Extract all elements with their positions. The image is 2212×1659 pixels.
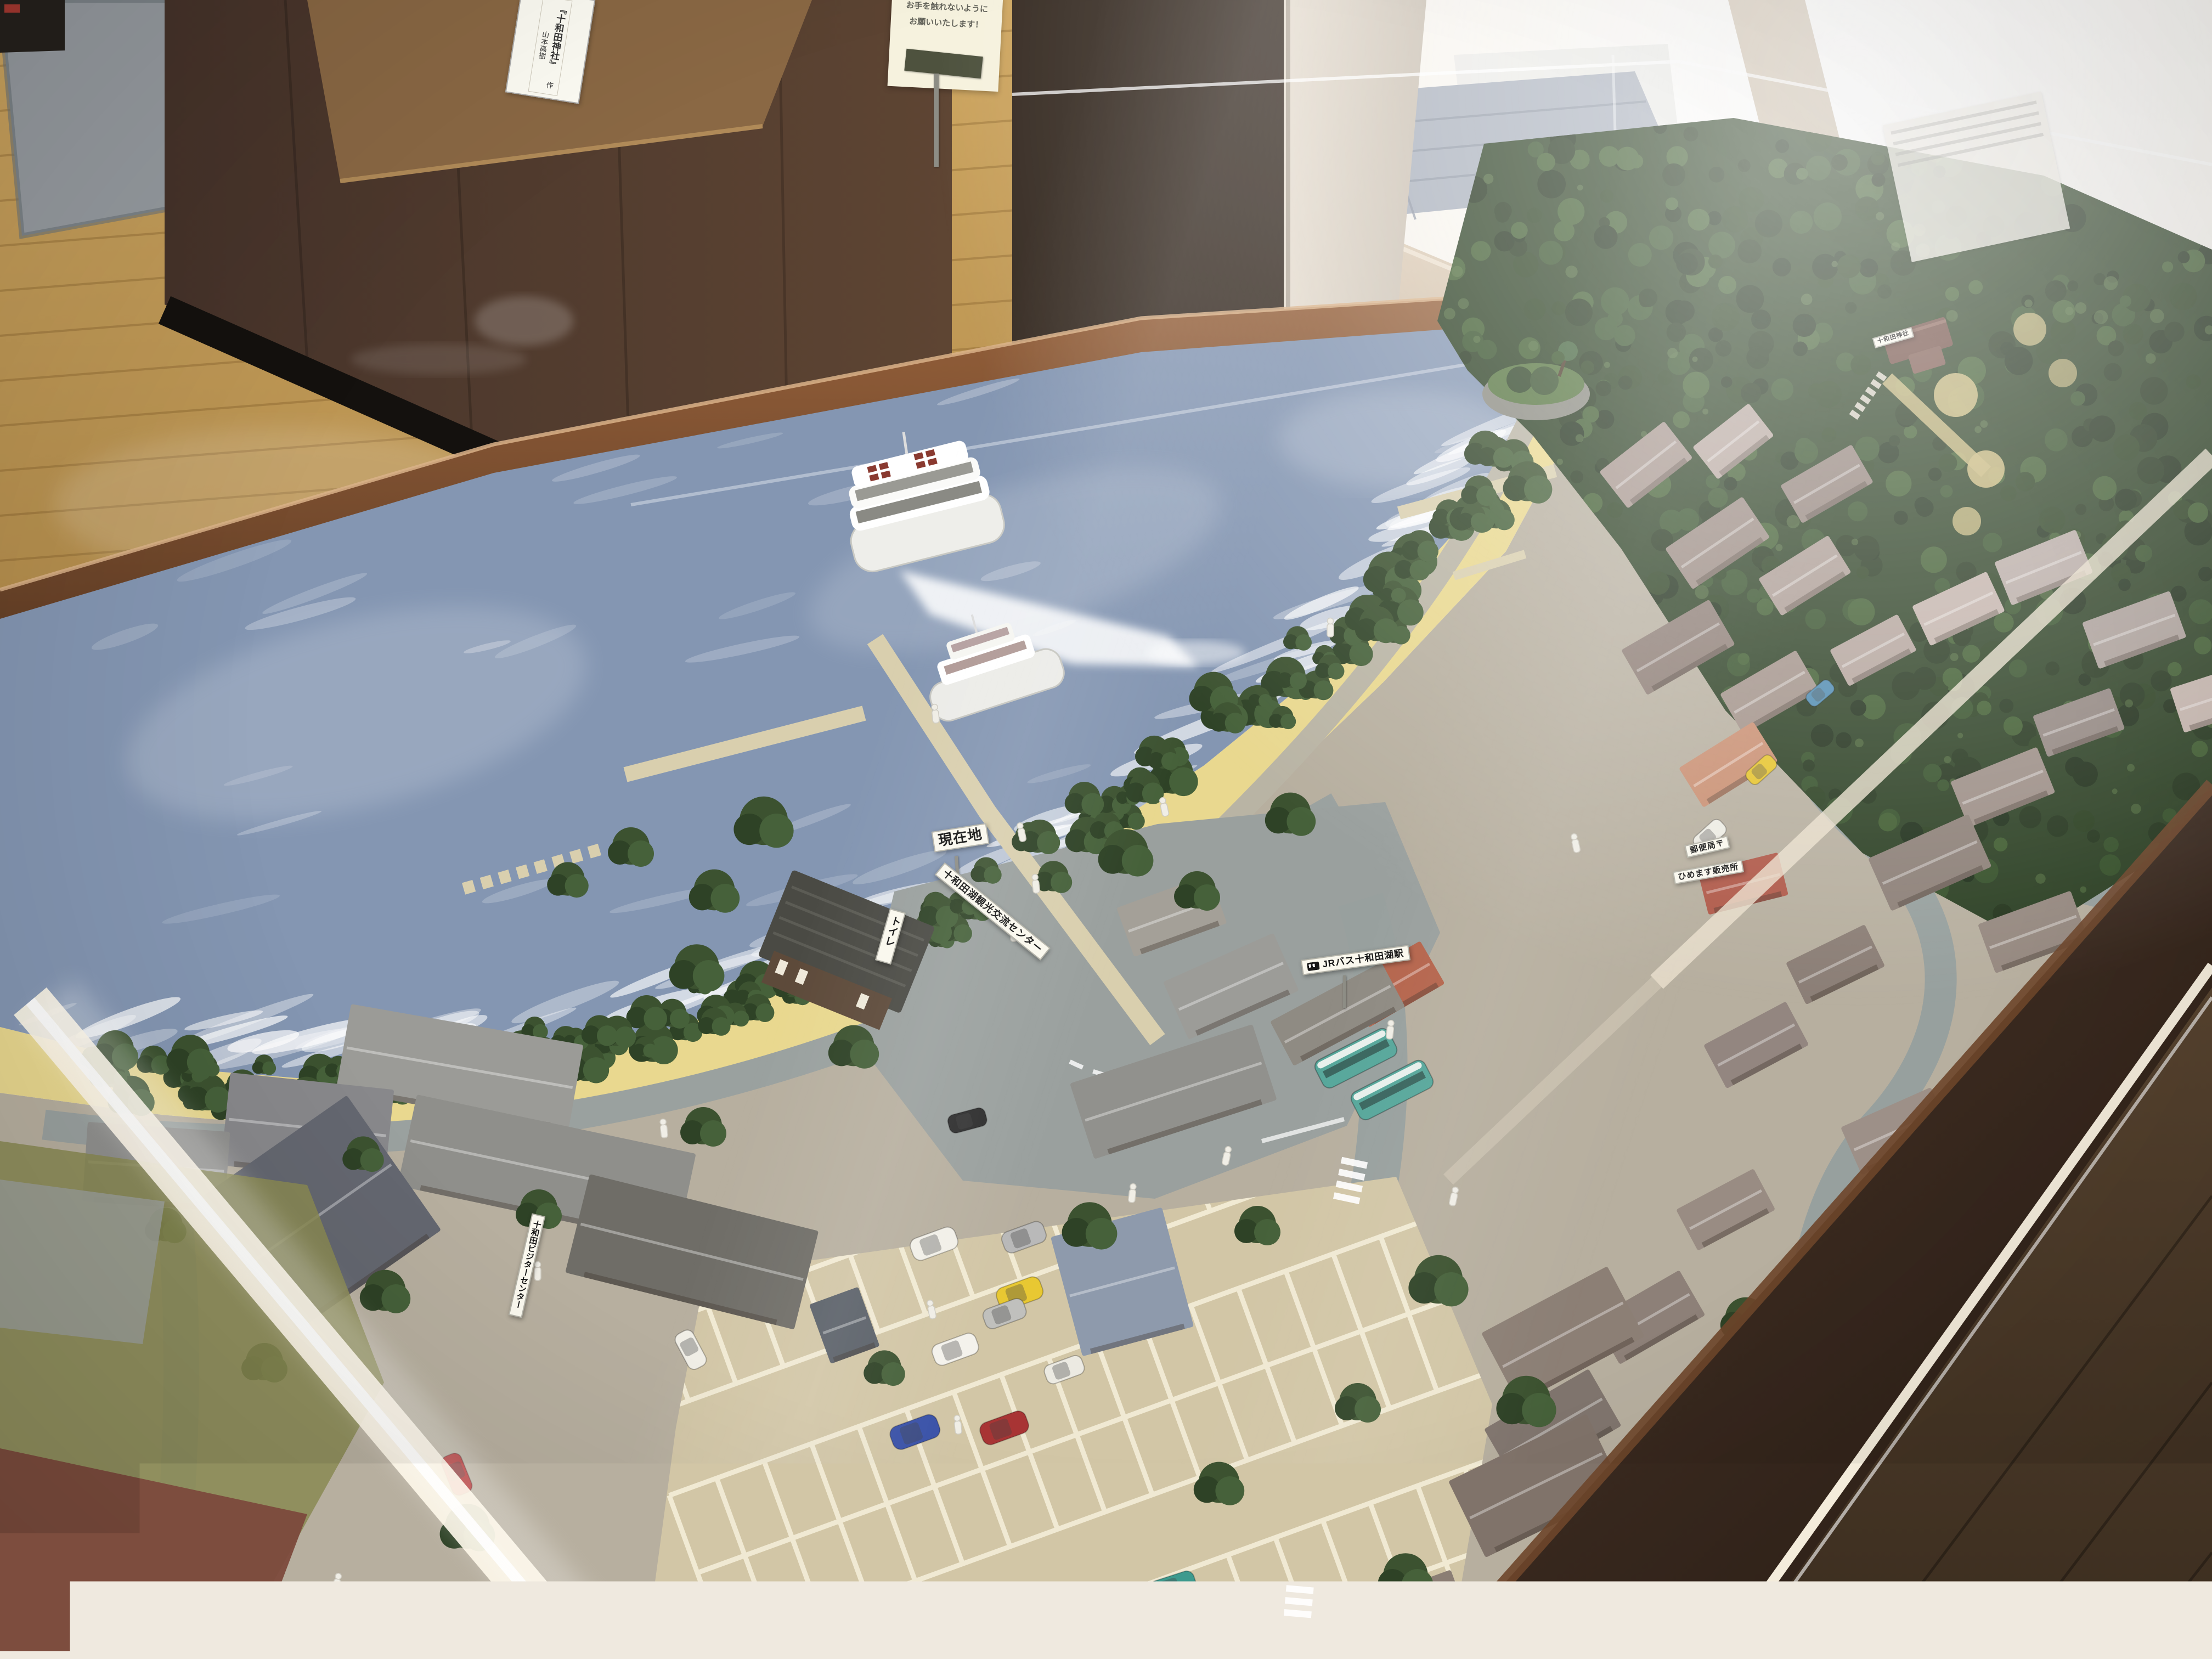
notice-pole bbox=[934, 74, 939, 167]
diorama-scene bbox=[0, 0, 2212, 1659]
bus-icon bbox=[1307, 961, 1320, 971]
notice-line1: お手を触れないように bbox=[891, 0, 1003, 15]
notice-paper: お手を触れないように お願いいたします！ bbox=[888, 0, 1003, 92]
exhibit-label-title: 『十和田神社』 bbox=[547, 4, 567, 70]
photo-of-diorama: お手を触れないように お願いいたします！ 『十和田神社』 作 山本高樹 現在地 … bbox=[0, 0, 2212, 1659]
notice-line2: お願いいたします！ bbox=[890, 14, 1002, 32]
sign-pole bbox=[1343, 975, 1346, 1008]
